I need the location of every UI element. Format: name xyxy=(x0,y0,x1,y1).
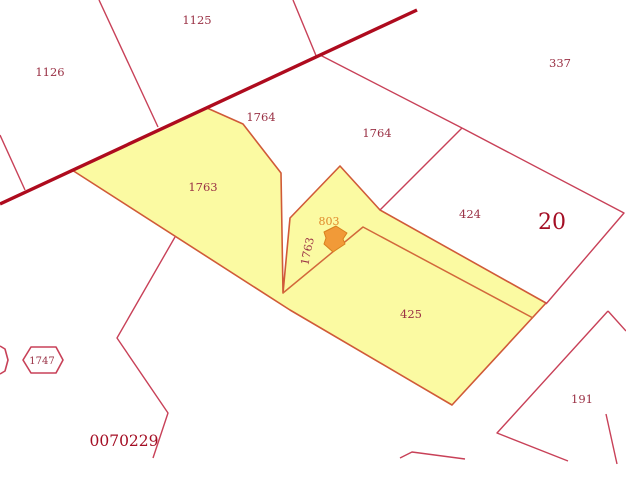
map-viewport[interactable]: 1125112633717641764176342420803176342517… xyxy=(0,0,626,481)
parcel-label-1763: 1763 xyxy=(188,180,217,194)
sheet-label: 0070229 xyxy=(89,432,158,450)
parcel-label-1764-east: 1764 xyxy=(362,126,391,140)
parcel-label-1764-west: 1764 xyxy=(246,110,275,124)
parcel-label-191: 191 xyxy=(571,392,593,406)
parcel-label-803: 803 xyxy=(319,215,340,228)
block-label-20: 20 xyxy=(538,210,566,235)
parcel-label-337: 337 xyxy=(549,56,571,70)
parcel-label-1747: 1747 xyxy=(29,356,54,367)
parcel-label-424: 424 xyxy=(459,207,481,221)
parcel-label-1125: 1125 xyxy=(182,13,211,27)
parcel-label-425: 425 xyxy=(400,307,422,321)
cadastral-map-canvas[interactable]: 1125112633717641764176342420803176342517… xyxy=(0,0,626,481)
parcel-label-1126: 1126 xyxy=(35,65,64,79)
